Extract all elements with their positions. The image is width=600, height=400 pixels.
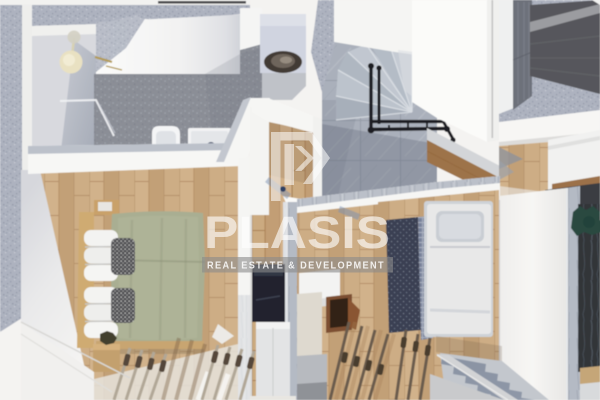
svg-text:PLASIS: PLASIS [204, 207, 390, 258]
svg-text:REAL ESTATE & DEVELOPMENT: REAL ESTATE & DEVELOPMENT [207, 261, 385, 272]
